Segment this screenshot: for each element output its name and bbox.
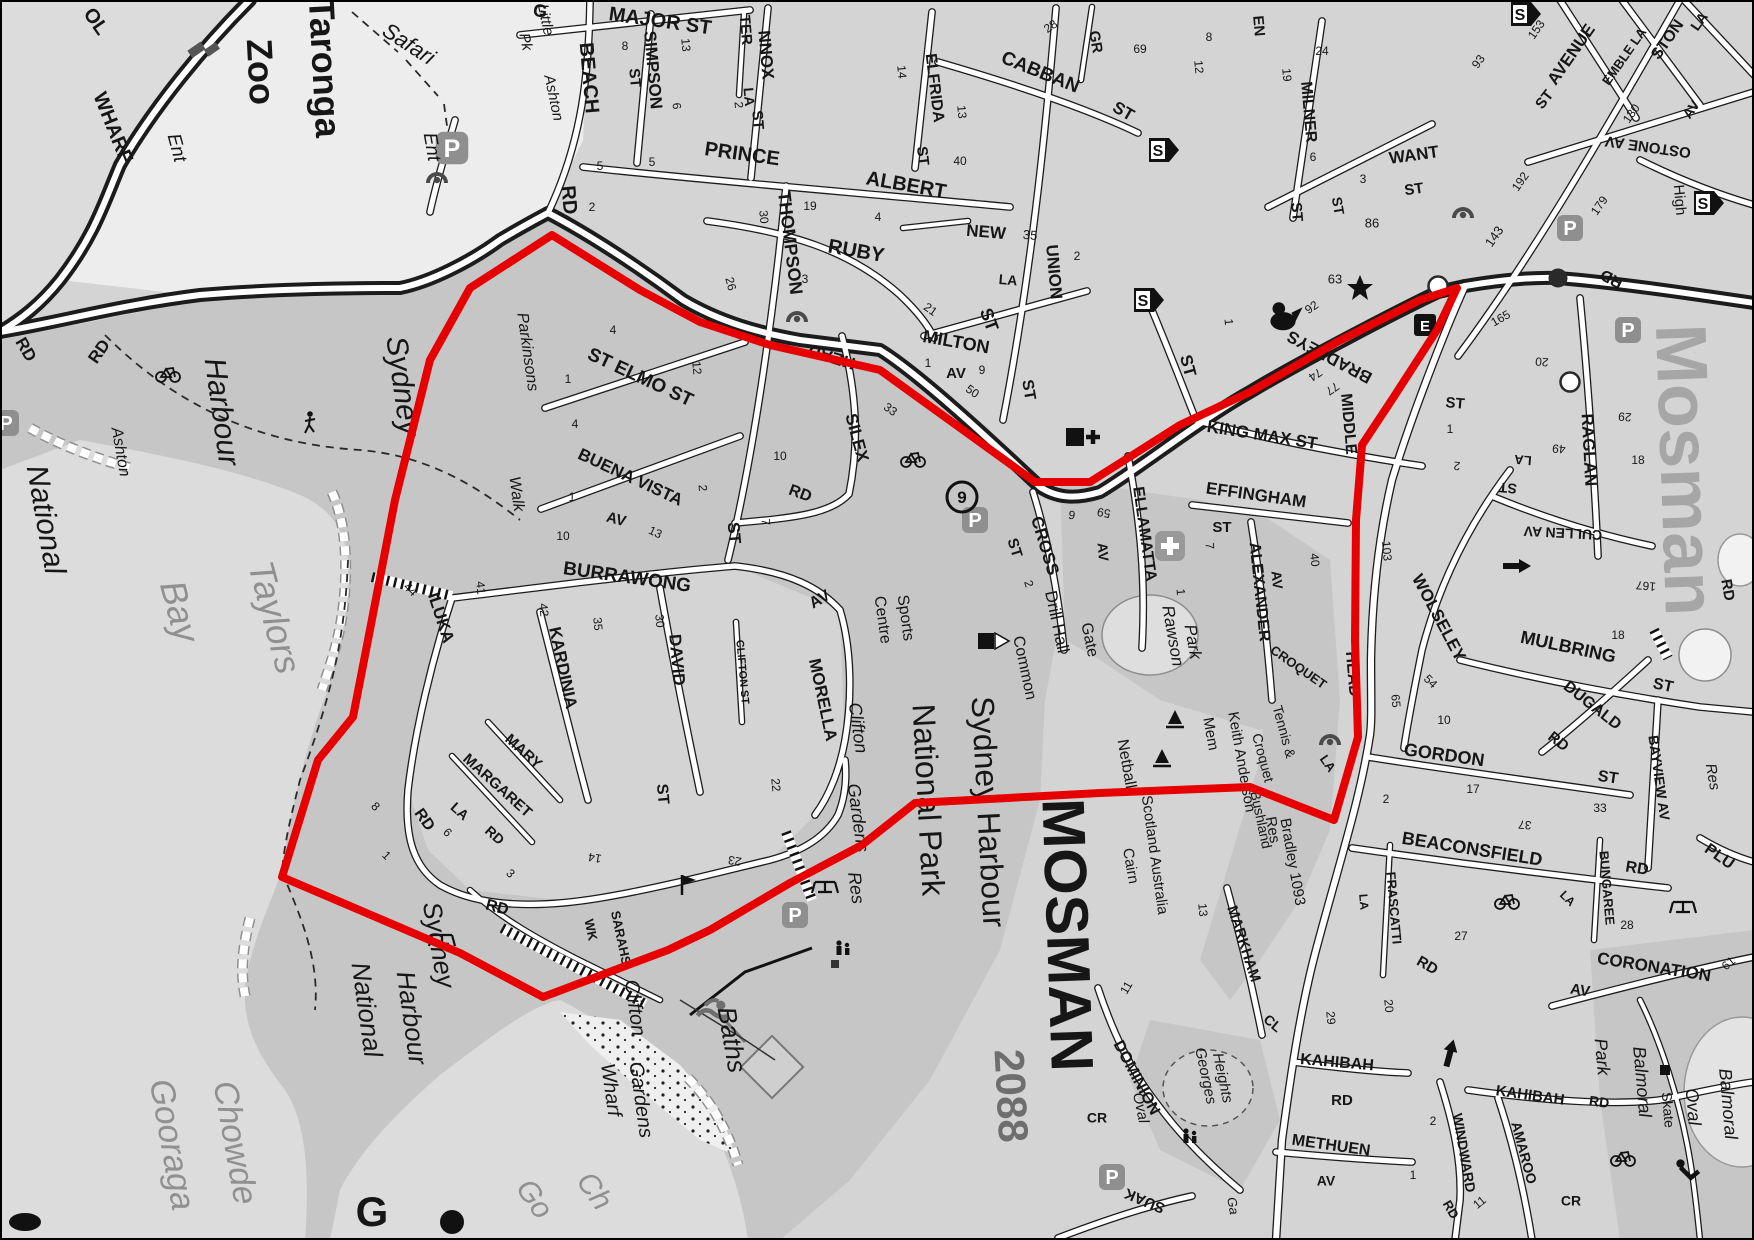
map-label: 167 bbox=[1635, 578, 1656, 594]
map-label: 4 bbox=[610, 323, 617, 337]
map-label: 24 bbox=[1315, 44, 1329, 58]
map-label: RD bbox=[1331, 1092, 1353, 1109]
map-label: 13 bbox=[1195, 903, 1210, 918]
map-label: 33 bbox=[1593, 801, 1607, 815]
map-label: Mosman bbox=[1640, 322, 1730, 617]
map-label: 4 bbox=[572, 417, 579, 431]
map-label: Ga bbox=[1224, 1196, 1242, 1216]
map-label: MOSMAN bbox=[1029, 797, 1105, 1072]
map-label: RD bbox=[1624, 859, 1649, 879]
map-label: 4 bbox=[875, 210, 882, 224]
map-label: 35 bbox=[590, 617, 605, 632]
map-label: 10 bbox=[773, 449, 787, 463]
map-label: 23 bbox=[727, 853, 743, 869]
map-label: 20 bbox=[1381, 999, 1396, 1014]
map-label: AV bbox=[1268, 570, 1286, 591]
map-label: CR bbox=[1561, 1193, 1581, 1209]
map-label: 1 bbox=[925, 356, 932, 370]
map-label: 12 bbox=[1191, 60, 1206, 75]
map-label: RAGLAN bbox=[1578, 413, 1601, 487]
map-label: 103 bbox=[1379, 540, 1395, 561]
map-label: 30 bbox=[756, 210, 771, 225]
map-label: ST bbox=[653, 783, 672, 805]
map-label: ST bbox=[625, 68, 644, 89]
map-label: ST bbox=[1018, 378, 1038, 401]
map-label: 13 bbox=[678, 38, 693, 53]
map-label: 28 bbox=[1620, 918, 1634, 932]
map-label: Park bbox=[1591, 1038, 1614, 1078]
street-map: P S 9 bbox=[0, 0, 1754, 1240]
map-label: 30 bbox=[652, 614, 667, 629]
map-label: 59 bbox=[1096, 505, 1112, 521]
map-label: 9 bbox=[979, 363, 986, 377]
map-label: 17 bbox=[1466, 782, 1480, 796]
map-label: ST bbox=[1403, 180, 1424, 200]
map-label: 63 bbox=[1328, 271, 1342, 286]
map-label: 14 bbox=[587, 850, 603, 866]
map-label: 8 bbox=[622, 39, 629, 53]
map-label: High bbox=[1670, 184, 1690, 216]
point-blob bbox=[440, 1210, 464, 1234]
map-label: 41 bbox=[473, 581, 488, 596]
map-label: 2 bbox=[1383, 792, 1390, 806]
map-label: Zoo bbox=[239, 38, 283, 106]
map-label: EN bbox=[1249, 15, 1268, 37]
map-label: RD bbox=[1588, 1092, 1610, 1111]
map-label: 5 bbox=[649, 155, 656, 169]
map-label: ST bbox=[1597, 768, 1620, 788]
map-label: NEW bbox=[966, 221, 1008, 243]
map-label: LA bbox=[1513, 452, 1532, 469]
map-label: 42 bbox=[536, 603, 551, 618]
map-label: 2 bbox=[1430, 1114, 1437, 1128]
map-label: 2 bbox=[589, 200, 596, 214]
map-label: 65 bbox=[1388, 694, 1403, 709]
map-label: 3 bbox=[1360, 172, 1367, 186]
map-label: Skate bbox=[1659, 1091, 1678, 1128]
map-label: 8 bbox=[1206, 30, 1213, 44]
map-label: Oval bbox=[1682, 1088, 1705, 1128]
map-label: 35 bbox=[1022, 227, 1038, 243]
map-label: 40 bbox=[1307, 553, 1322, 568]
map-label: ST bbox=[913, 145, 932, 166]
park-circle bbox=[1679, 629, 1731, 681]
map-label: 14 bbox=[894, 65, 909, 80]
map-label: 10 bbox=[556, 529, 570, 543]
clifton-subdivision bbox=[408, 566, 845, 900]
map-label: 12 bbox=[689, 361, 704, 376]
map-label: 19 bbox=[1279, 68, 1294, 83]
map-label: AV bbox=[946, 365, 966, 382]
map-label: ST bbox=[1445, 394, 1466, 413]
map-label: ST bbox=[1329, 196, 1348, 217]
map-label: 13 bbox=[954, 105, 969, 120]
map-label: ST bbox=[748, 110, 767, 131]
skate-marker bbox=[1660, 1065, 1670, 1075]
map-label: 22 bbox=[768, 778, 783, 793]
map-label: LA bbox=[741, 87, 759, 107]
map-label: 20 bbox=[1534, 354, 1549, 369]
map-label: 2 bbox=[1074, 249, 1081, 263]
map-label: 29 bbox=[1617, 409, 1632, 424]
map-label: 40 bbox=[953, 154, 967, 168]
map-label: 3 bbox=[802, 272, 809, 286]
map-label: 10 bbox=[1437, 713, 1451, 727]
map-label: 29 bbox=[1323, 1011, 1338, 1026]
map-label: 86 bbox=[1365, 215, 1379, 230]
map-label: LA bbox=[998, 271, 1018, 289]
map-label: TER bbox=[736, 14, 756, 46]
shore-blob bbox=[9, 1213, 41, 1231]
map-label: 18 bbox=[1631, 453, 1645, 467]
map-label: G bbox=[356, 1188, 389, 1235]
map-label: Taronga bbox=[301, 0, 349, 139]
building-marker bbox=[831, 960, 839, 968]
map-label: 19 bbox=[803, 199, 817, 213]
map-label: 6 bbox=[1310, 150, 1317, 164]
map-label: 37 bbox=[1517, 817, 1532, 832]
map-label: 49 bbox=[1551, 441, 1566, 456]
map-canvas[interactable]: P S 9 bbox=[0, 0, 1754, 1240]
map-label: AV bbox=[1569, 981, 1591, 1001]
map-label: 1 bbox=[1410, 1168, 1417, 1182]
map-label: 2088 bbox=[985, 1048, 1037, 1144]
map-label: 18 bbox=[1611, 628, 1625, 642]
map-label: AV bbox=[1317, 1173, 1336, 1189]
map-label: AV bbox=[1095, 542, 1113, 562]
map-label: RD bbox=[556, 185, 580, 216]
map-label: LA bbox=[1356, 893, 1371, 910]
map-label: 1 bbox=[569, 490, 576, 504]
map-label: ST bbox=[1498, 480, 1518, 498]
map-label: 69 bbox=[1133, 42, 1147, 56]
map-label: CR bbox=[1087, 1110, 1107, 1126]
map-label: ST bbox=[1212, 519, 1231, 536]
map-label: 1 bbox=[565, 372, 572, 386]
map-label: ST bbox=[1287, 202, 1306, 223]
map-label: 27 bbox=[1454, 929, 1468, 943]
map-label: ST bbox=[724, 521, 745, 545]
map-label: 1 bbox=[1447, 422, 1454, 436]
map-label: 5 bbox=[597, 159, 604, 173]
